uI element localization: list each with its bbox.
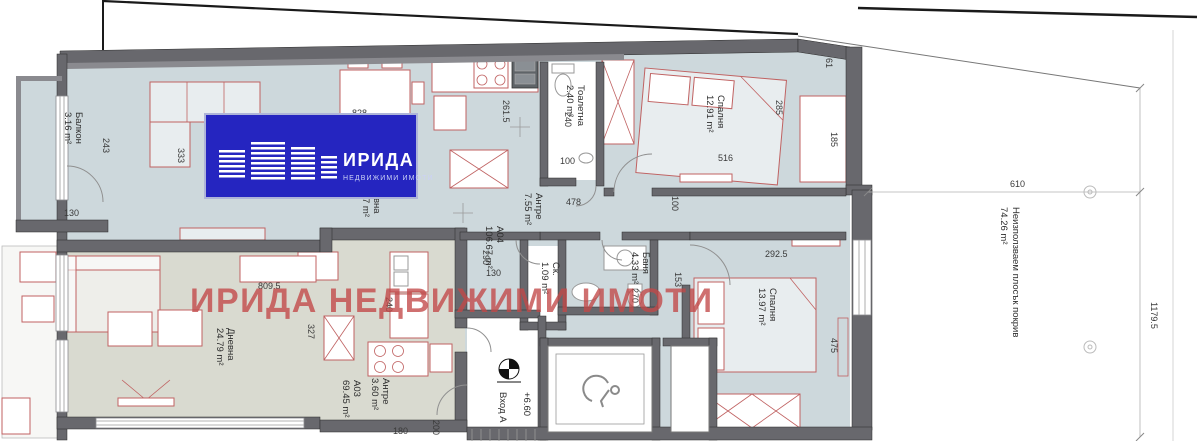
dim-label: 240 [563, 112, 573, 127]
dim-label: 327 [306, 324, 316, 339]
logo-title: ИРИДА [343, 150, 414, 170]
room-label-bedroom1: Спалня12.91 m² [704, 95, 726, 133]
dim-label: 200 [431, 420, 441, 435]
dim-label: 130 [486, 268, 501, 278]
room-label-living-a03: Дневна24.79 m² [214, 328, 236, 366]
dim-label: 61 [824, 58, 834, 68]
dim-label: 100 [560, 156, 575, 166]
dim-label: 261.5 [501, 100, 511, 123]
entrance-level: +6.60 [521, 392, 532, 416]
room-label-balcony: Балкон3.16 m² [62, 112, 84, 144]
entrance-label: Вход А [497, 392, 508, 423]
dim-label: 516 [718, 153, 733, 163]
dim-label: 333 [176, 148, 186, 163]
dim-label: 100 [670, 196, 680, 211]
dim-label: 1179.5 [1149, 302, 1159, 329]
dim-label: 610 [1010, 179, 1025, 189]
logo-subtitle: НЕДВИЖИМИ ИМОТИ [343, 175, 434, 182]
dim-label: 243 [101, 138, 111, 153]
balcony-top-floor [20, 78, 60, 220]
floor-plan-page: Балкон3.16 m² Тоалетна2.40 m² Спалня12.9… [0, 0, 1200, 441]
room-label-bedroom2: Спалня13.97 m² [756, 288, 778, 326]
dim-label: 292.5 [765, 249, 788, 259]
dim-label: 475 [829, 338, 839, 353]
elevator-shafts [548, 346, 709, 432]
watermark-text: ИРИДА НЕДВИЖИМИ ИМОТИ [190, 282, 714, 320]
dim-label: 130 [64, 208, 79, 218]
agency-logo: ИРИДА НЕДВИЖИМИ ИМОТИ [205, 114, 434, 198]
dim-label: 185 [829, 132, 839, 147]
dim-label: 180 [393, 426, 408, 436]
dim-label: 478 [566, 197, 581, 207]
floor-plan-drawing: Балкон3.16 m² Тоалетна2.40 m² Спалня12.9… [0, 0, 1200, 441]
dim-label: 285 [774, 100, 784, 115]
dim-label: 290 [481, 250, 491, 265]
